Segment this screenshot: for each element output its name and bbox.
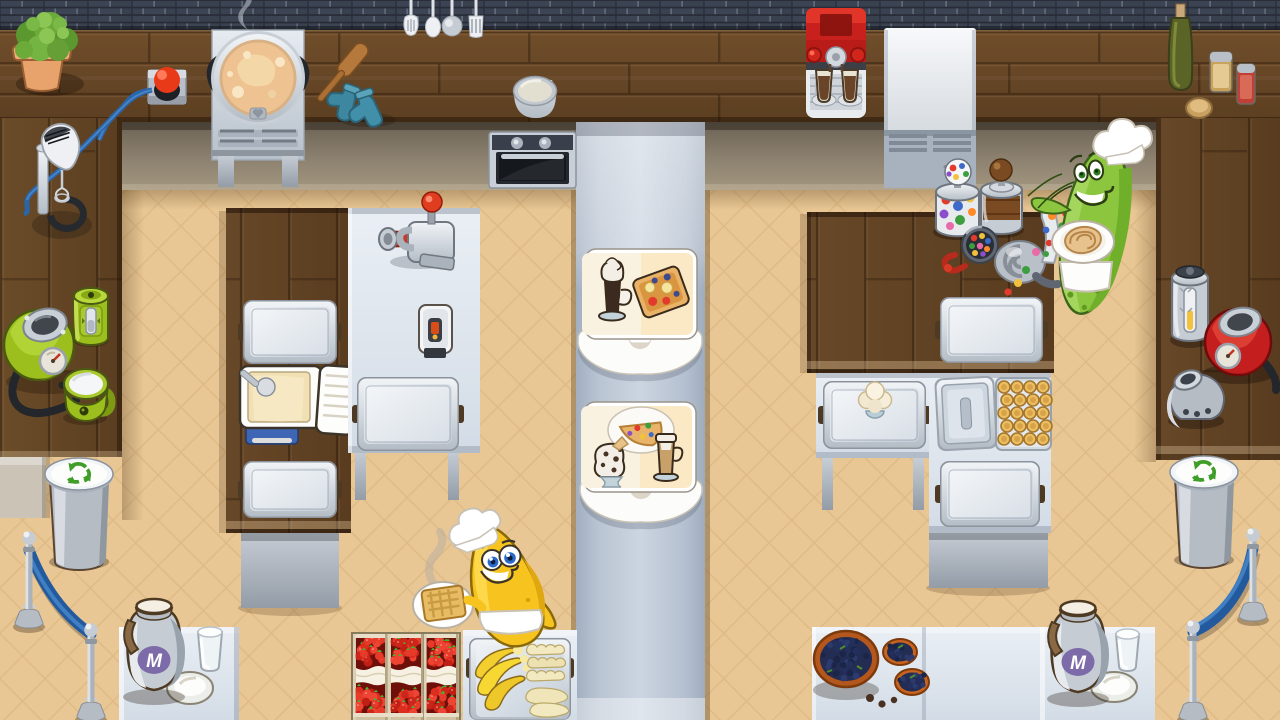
svg-text:M: M <box>146 651 163 672</box>
svg-text:M: M <box>1070 653 1087 674</box>
